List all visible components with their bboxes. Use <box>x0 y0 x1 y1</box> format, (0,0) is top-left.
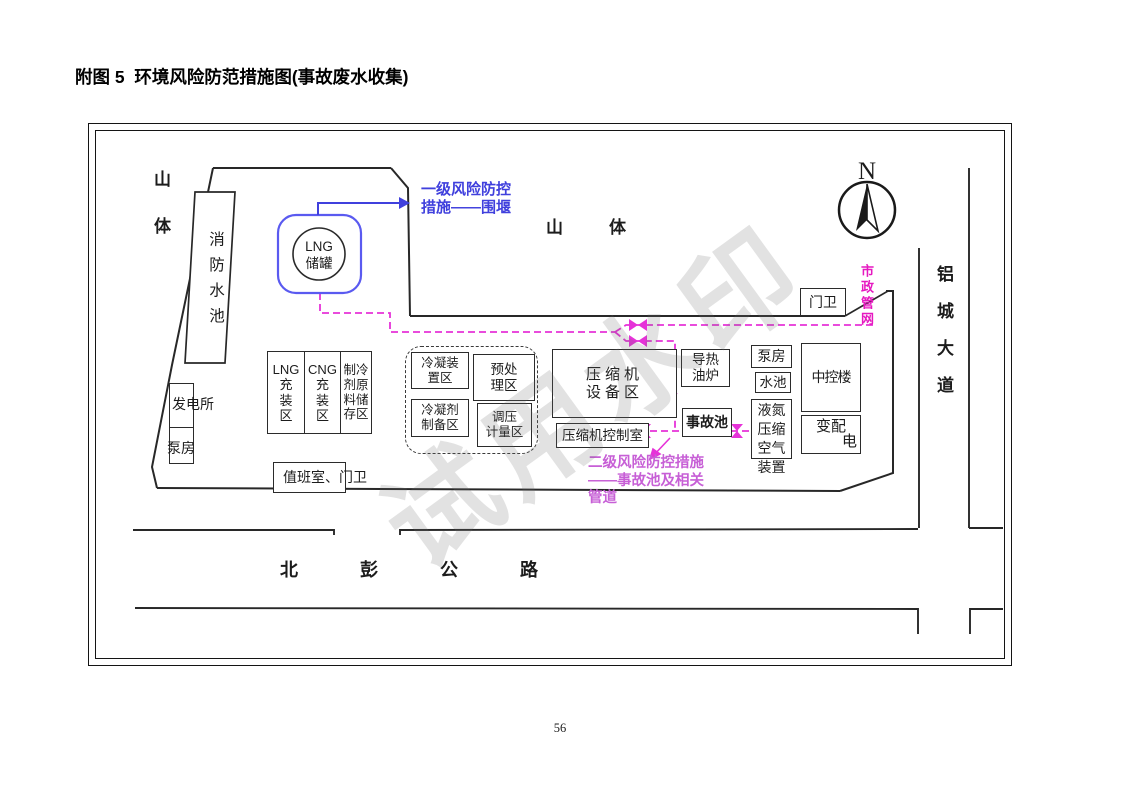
building-label: 调压 计量区 <box>486 410 524 440</box>
building-refrigerant-storage: 制冷 剂原 料储 存区 <box>341 352 371 433</box>
valve-icon <box>638 319 647 331</box>
building-nitrogen-unit: 液氮 压缩 空气 装置 <box>751 399 792 459</box>
building-label: 门卫 <box>809 294 837 311</box>
building-label: 制冷 剂原 料储 存区 <box>343 363 368 422</box>
building-label: CNG 充 装 区 <box>308 362 337 423</box>
label-mountain-top: 山体 <box>546 213 672 238</box>
building-label: 液氮 压缩 空气 装置 <box>758 401 786 477</box>
building-label: LNG 充 装 区 <box>273 362 300 423</box>
label-fire-water-pool: 消防水池 <box>204 231 226 333</box>
compass-icon <box>839 182 895 238</box>
building-duty-room: 值班室、门卫 <box>273 462 346 493</box>
building-compressor-equipment: 压缩机 设备区 <box>552 349 677 418</box>
label-municipal-network: 市政管网 <box>857 264 876 328</box>
building-pretreatment: 预处 理区 <box>473 354 535 401</box>
building-water-pool: 水池 <box>755 372 791 393</box>
building-label: 事故池 <box>686 414 728 431</box>
label-secondary-measure: 二级风险防控措施 ——事故池及相关 管道 <box>588 455 704 508</box>
building-label: 冷凝装 置区 <box>421 356 459 386</box>
building-label: 电 <box>842 433 857 451</box>
building-label: 冷凝剂 制备区 <box>421 403 459 433</box>
building-label: 水池 <box>760 375 787 391</box>
building-filling-areas: LNG 充 装 区 CNG 充 装 区 制冷 剂原 料储 存区 <box>267 351 372 434</box>
building-accident-pool: 事故池 <box>682 408 732 437</box>
building-cng-filling: CNG 充 装 区 <box>305 352 341 433</box>
building-gate-guard-top: 门卫 <box>800 288 846 316</box>
valve-icon <box>731 424 743 431</box>
label-road-south: 北彭公路 <box>280 556 600 582</box>
valve-icon <box>731 431 743 438</box>
building-pump-house-right: 泵房 <box>751 345 792 368</box>
building-label: 预处 理区 <box>491 362 518 394</box>
building-label: 值班室、门卫 <box>283 469 367 486</box>
building-label: 泵房 <box>758 348 786 365</box>
label-primary-measure: 一级风险防控 措施——围堰 <box>421 181 511 218</box>
building-heat-oil-furnace: 导热 油炉 <box>681 349 730 387</box>
primary-annotation-arrow <box>318 197 410 215</box>
valve-icon <box>638 335 647 347</box>
building-label: 压缩机控制室 <box>562 428 643 444</box>
label-compass-north: N <box>854 158 880 186</box>
building-label-pump-left: 泵房 <box>167 438 195 458</box>
building-label: 导热 油炉 <box>692 352 719 384</box>
building-lng-filling: LNG 充 装 区 <box>268 352 305 433</box>
valve-icon <box>629 335 638 347</box>
building-label: 中控楼 <box>812 369 851 386</box>
building-transformer: 变配 电 <box>801 415 861 454</box>
building-condensing-unit: 冷凝装 置区 <box>411 352 469 389</box>
building-label: 压缩机 设备区 <box>586 366 643 401</box>
page-number: 56 <box>545 721 575 736</box>
building-compressor-control: 压缩机控制室 <box>556 423 649 448</box>
label-mountain-left: 山体 <box>148 170 173 264</box>
valve-icon <box>629 319 638 331</box>
figure-page: 附图 5 环境风险防范措施图(事故废水收集) <box>0 0 1123 794</box>
building-regulating-metering: 调压 计量区 <box>477 403 532 447</box>
label-road-east: 铝城大道 <box>931 265 956 413</box>
building-central-control: 中控楼 <box>801 343 861 412</box>
label-lng-tank: LNG 储罐 <box>294 239 344 273</box>
building-condensing-agent-prep: 冷凝剂 制备区 <box>411 399 469 437</box>
building-label-power-station: 发电所 <box>172 394 214 414</box>
